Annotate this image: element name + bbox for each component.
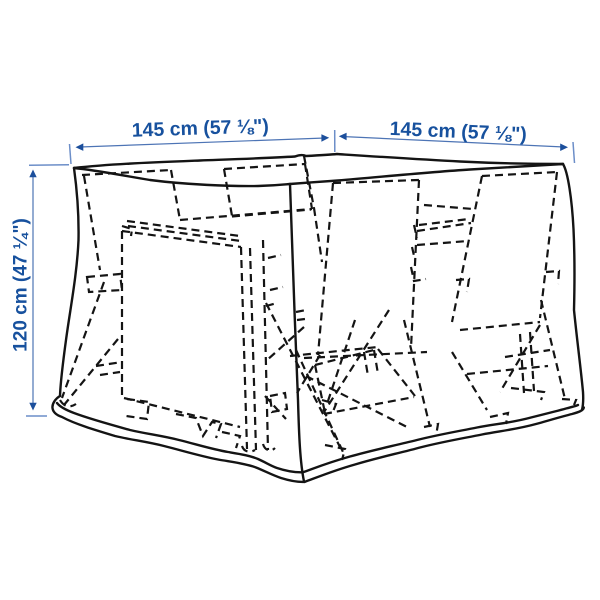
- svg-text:145 cm (57 ⅛"): 145 cm (57 ⅛"): [131, 115, 269, 142]
- svg-text:120 cm (47 ¼"): 120 cm (47 ¼"): [11, 218, 32, 352]
